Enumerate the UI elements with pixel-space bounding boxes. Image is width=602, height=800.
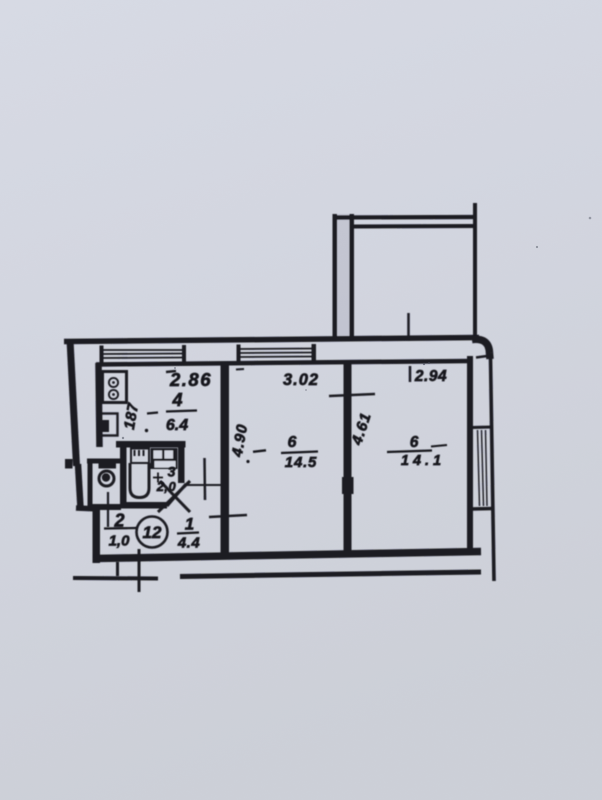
- svg-text:1: 1: [185, 515, 194, 534]
- svg-text:12: 12: [143, 523, 162, 542]
- svg-text:6: 6: [288, 434, 297, 451]
- svg-text:1,0: 1,0: [109, 533, 131, 550]
- svg-text:14.1: 14.1: [401, 453, 445, 469]
- svg-text:3.02: 3.02: [283, 371, 319, 389]
- svg-text:4: 4: [171, 390, 182, 410]
- svg-text:2.94: 2.94: [414, 368, 447, 385]
- svg-text:2.86: 2.86: [169, 369, 212, 390]
- svg-text:3: 3: [168, 464, 176, 480]
- svg-text:6.4: 6.4: [166, 417, 188, 434]
- svg-text:2,0: 2,0: [156, 479, 177, 494]
- svg-text:6: 6: [410, 434, 419, 451]
- svg-text:4.4: 4.4: [177, 535, 201, 552]
- svg-text:14.5: 14.5: [285, 454, 317, 471]
